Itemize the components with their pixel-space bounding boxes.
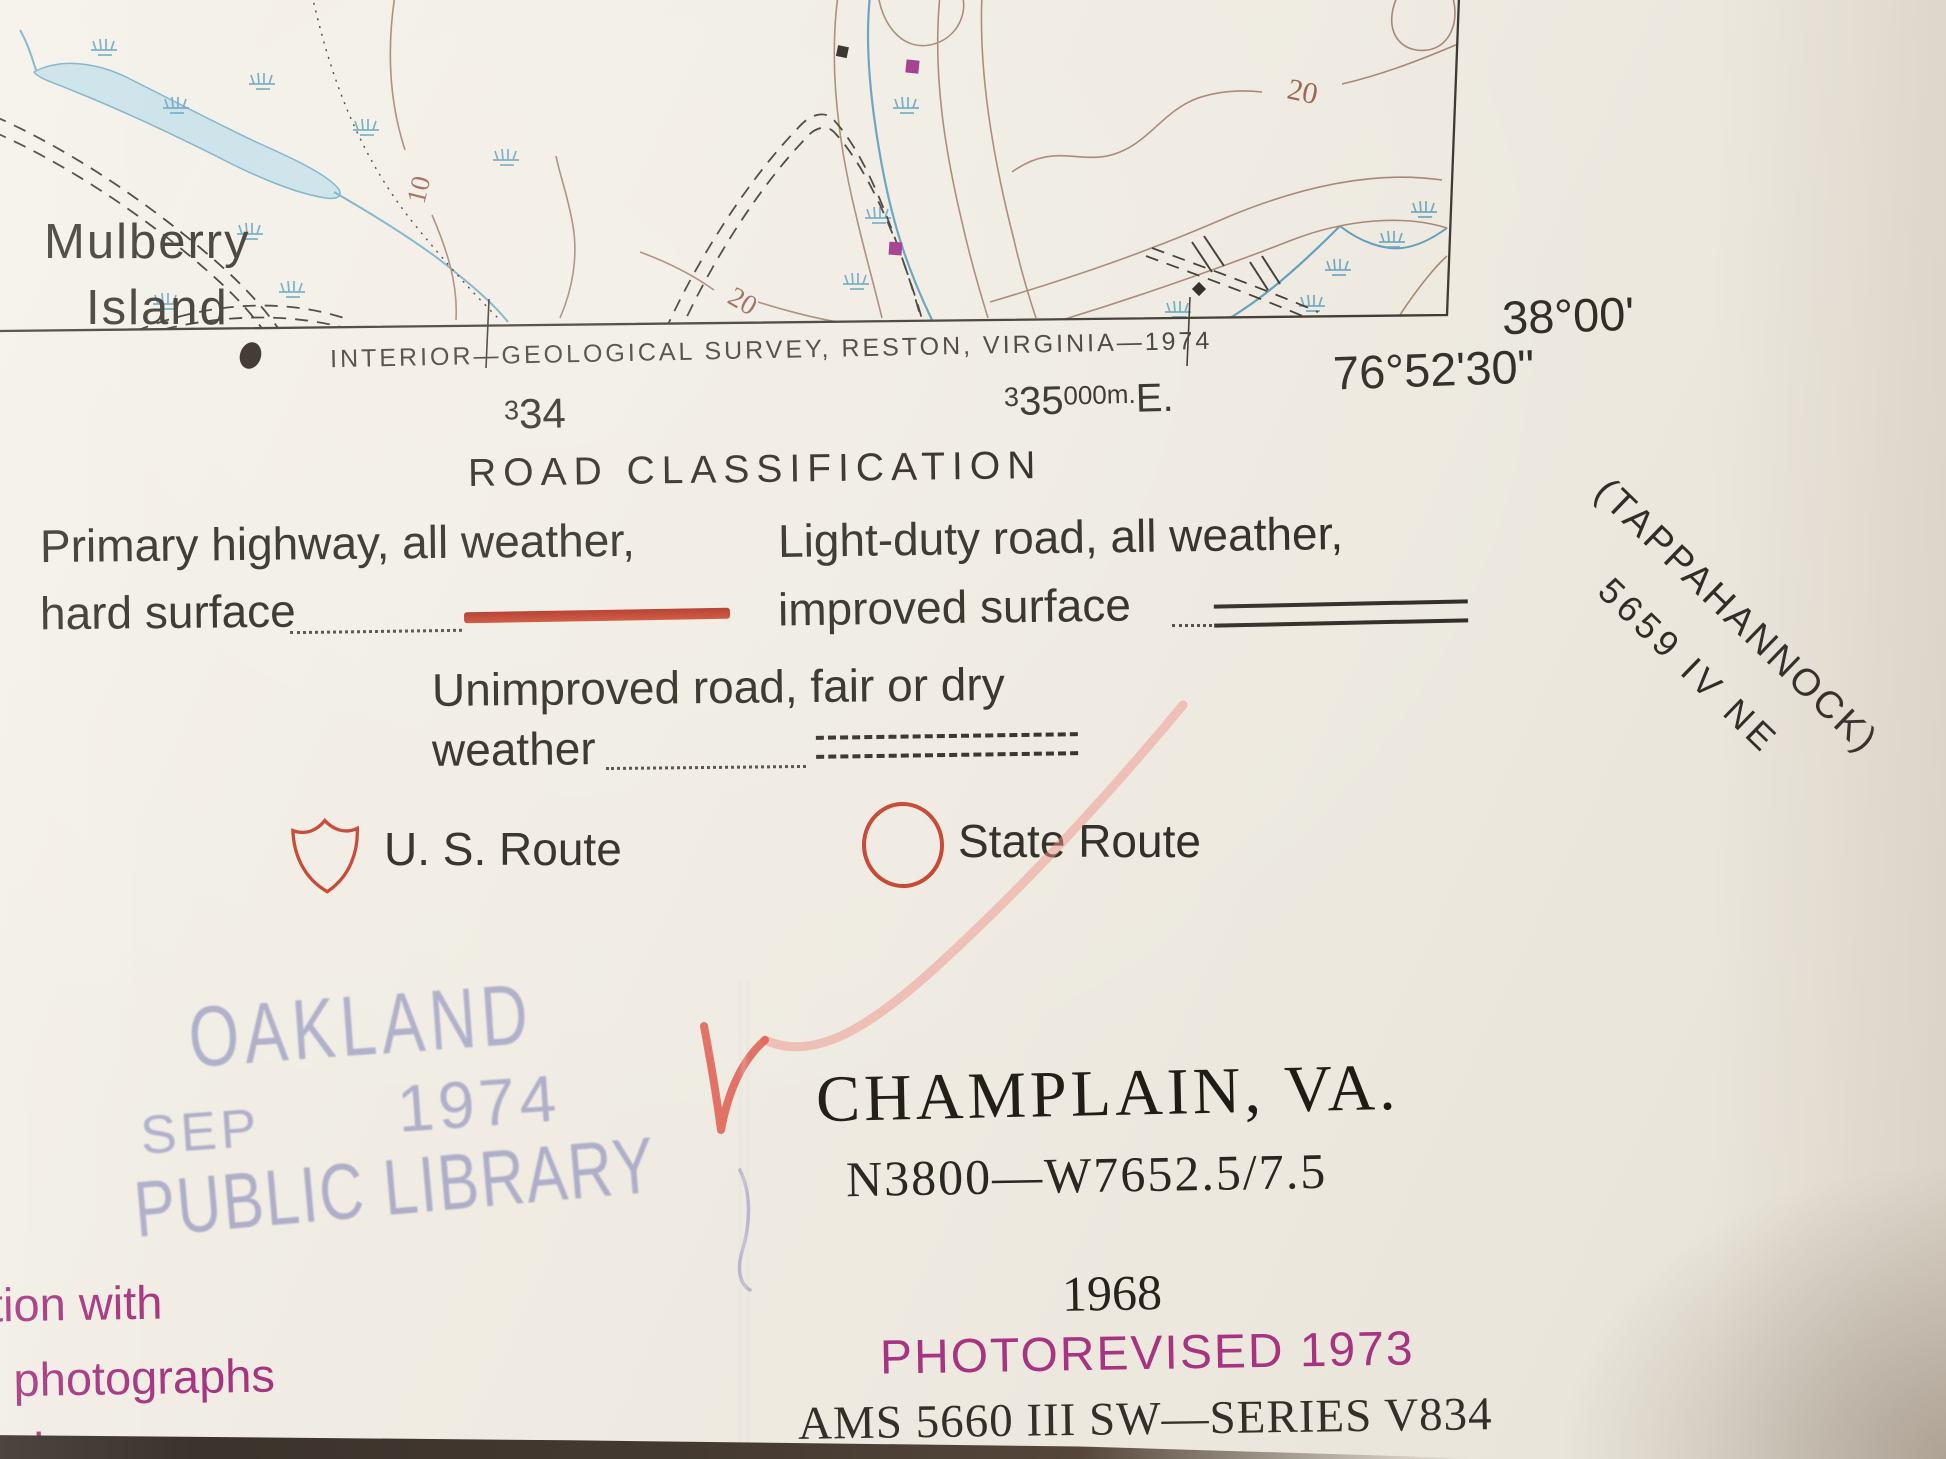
edition-year: 1968 — [1062, 1263, 1163, 1323]
credit-fragment-line1: tion with — [0, 1274, 163, 1332]
red-checkmark-tail — [765, 705, 1183, 1047]
credit-fragment-line2: l photographs — [0, 1348, 275, 1408]
photorevised-note: PHOTOREVISED 1973 — [880, 1321, 1416, 1385]
series-note: AMS 5660 III SW—SERIES V834 — [798, 1387, 1493, 1451]
quad-location-code: N3800—W7652.5/7.5 — [846, 1142, 1328, 1208]
corner-shadow — [1526, 1139, 1946, 1459]
paper-crease — [740, 980, 748, 1459]
quad-title: CHAMPLAIN, VA. — [815, 1050, 1400, 1138]
red-checkmark-tip — [704, 1026, 765, 1130]
map-photo: 10 20 20 Mulberry Island INTERIOR—GEOLOG… — [0, 0, 1946, 1459]
